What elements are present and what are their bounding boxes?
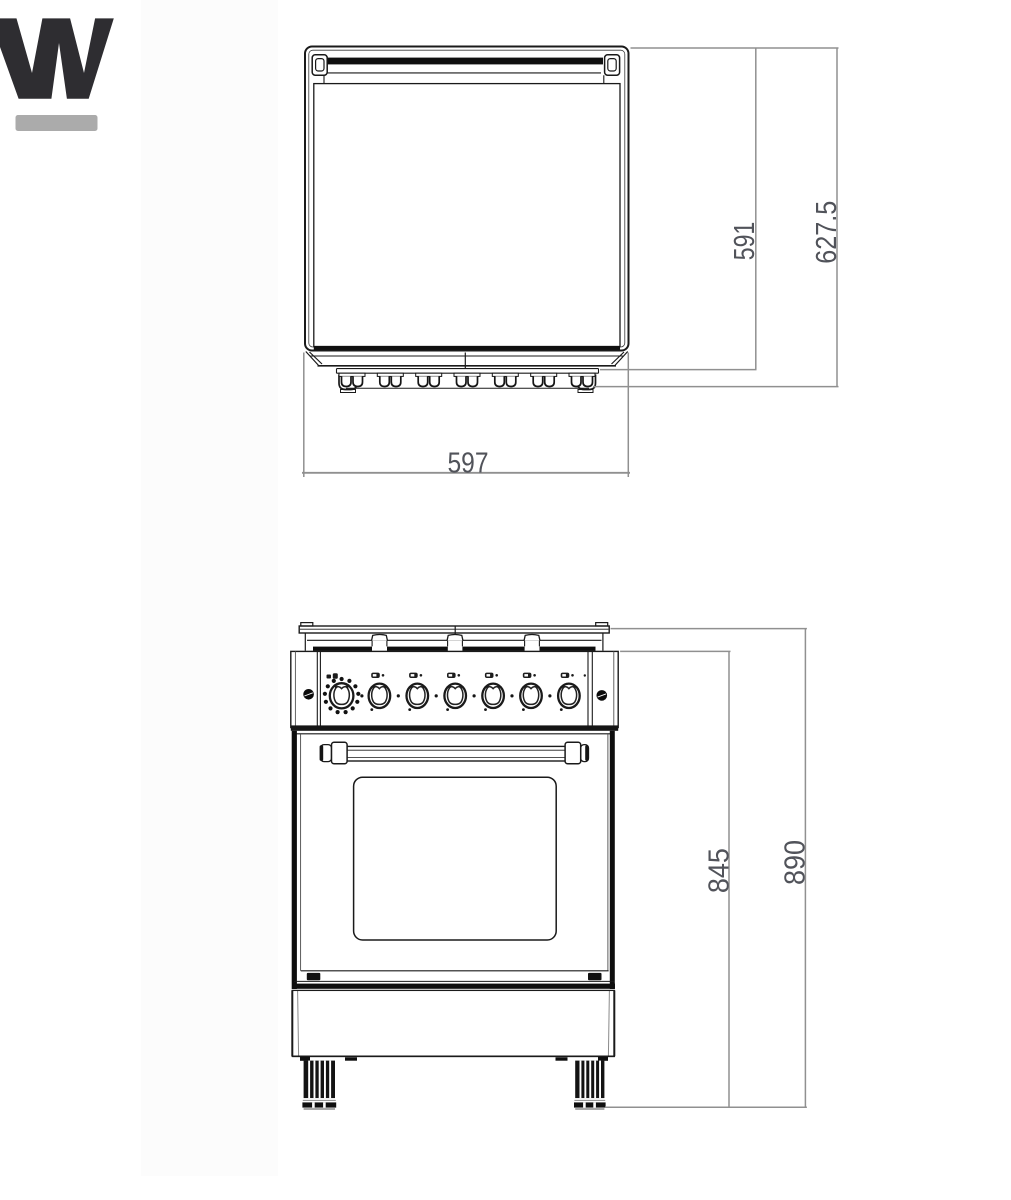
svg-text:627.5: 627.5 <box>811 201 843 264</box>
svg-text:597: 597 <box>448 447 489 479</box>
svg-text:591: 591 <box>729 222 761 261</box>
svg-text:845: 845 <box>703 848 735 893</box>
svg-text:890: 890 <box>780 840 812 885</box>
